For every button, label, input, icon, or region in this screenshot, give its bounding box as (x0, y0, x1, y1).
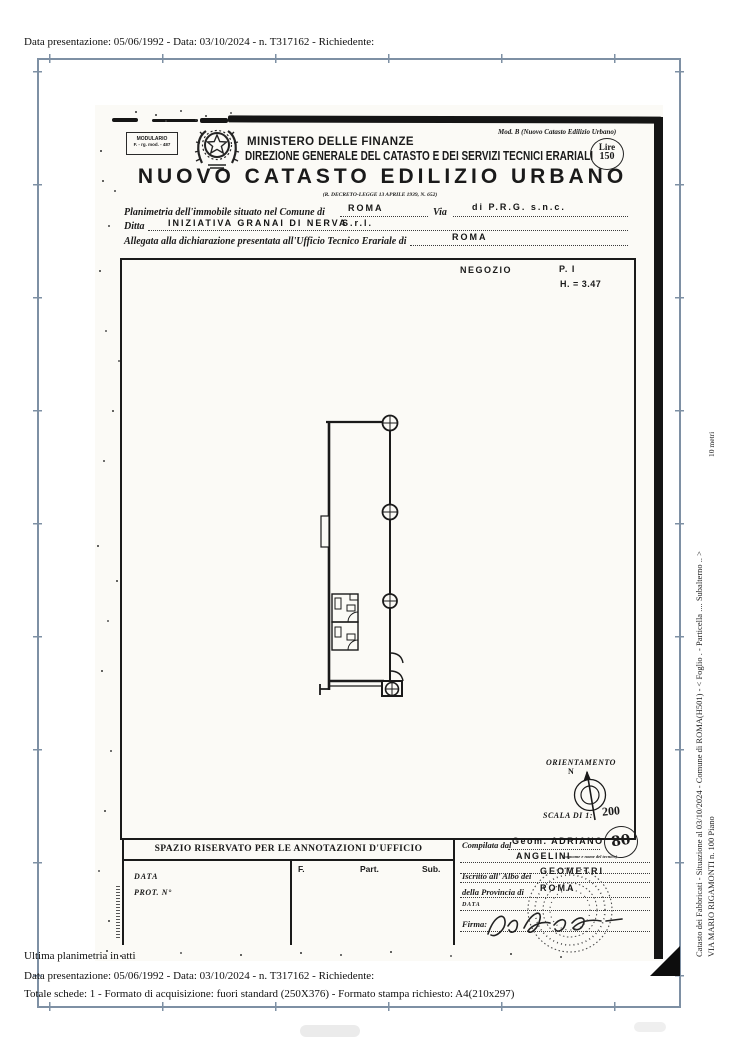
scan-edge-top-fragment (112, 118, 138, 122)
mod-b-label: Mod. B (Nuovo Catasto Edilizio Urbano) (498, 128, 616, 136)
lire-value: 150 (591, 152, 623, 162)
annotations-data-label: DATA (134, 872, 158, 881)
via-field-value: di P.R.G. s.n.c. (472, 202, 566, 212)
scale-value: 200 (601, 803, 620, 820)
bottom-margin-line2: Totale schede: 1 - Formato di acquisizio… (24, 988, 514, 1000)
ditta-field-line (148, 230, 628, 231)
orientation-label: ORIENTAMENTO (546, 758, 616, 767)
comune-field-line (340, 216, 428, 217)
bottom-margin-line1: Data presentazione: 05/06/1992 - Data: 0… (24, 970, 374, 982)
modulario-line2: F. - rg. mod. - 487 (127, 142, 177, 147)
annotations-header: SPAZIO RISERVATO PER LE ANNOTAZIONI D'UF… (124, 840, 453, 861)
ditta-field-value-suffix: S.r.l. (342, 218, 373, 228)
side-margin-line2: VIA MARIO RIGAMONTI n. 100 Piano (706, 816, 716, 957)
side-margin-line1: Catasto dei Fabbricati - Situazione al 0… (694, 551, 704, 957)
decree-reference: (R. DECRETO-LEGGE 13 APRILE 1939, N. 652… (180, 192, 580, 198)
via-field-line (453, 216, 628, 217)
technician-name-line1: Geom. ADRIANO (512, 836, 604, 846)
scan-edge-right (654, 117, 663, 959)
badge-number: 80 (610, 832, 632, 851)
scan-noise-bottom (300, 952, 302, 954)
ministry-name: MINISTERO DELLE FINANZE (247, 136, 414, 148)
compiler-date-label: DATA (462, 902, 481, 908)
register-label: Iscritto all' Albo dei (462, 871, 531, 881)
office-annotations-box: SPAZIO RISERVATO PER LE ANNOTAZIONI D'UF… (122, 838, 455, 945)
technician-line2-rule (460, 862, 650, 863)
comune-field-label: Planimetria dell'immobile situato nel Co… (124, 207, 325, 218)
print-smudge (300, 1025, 360, 1037)
ufficio-field-label: Allegata alla dichiarazione presentata a… (124, 236, 407, 247)
province-label: della Provincia di (462, 887, 524, 897)
technician-line1-rule (508, 849, 600, 850)
scan-edge-top-fragment (152, 119, 198, 122)
scan-noise-left (100, 150, 102, 152)
annotations-prot-label: PROT. N° (134, 888, 172, 897)
frame-bottom-ticks (38, 1002, 680, 1011)
scale-label: SCALA DI 1: (543, 811, 593, 820)
via-field-label: Via (433, 207, 447, 218)
technician-note: (cognome e nome del tecnico) (562, 854, 617, 859)
floor-plan-drawing (310, 408, 430, 700)
ufficio-field-value: ROMA (452, 232, 488, 242)
compiled-by-label: Compilata dal (462, 840, 511, 850)
annotations-divider (290, 859, 292, 945)
print-smudge (634, 1022, 666, 1032)
italy-emblem-icon (194, 123, 240, 171)
frame-right-ticks (675, 58, 684, 1008)
frame-top-ticks (38, 54, 680, 63)
annotations-col-foglio: F. (298, 864, 305, 874)
floor-label: P. I (559, 264, 575, 274)
direction-name: DIREZIONE GENERALE DEL CATASTO E DEI SER… (245, 149, 593, 163)
modulario-box: MODULARIO F. - rg. mod. - 487 (126, 132, 178, 155)
top-margin-text: Data presentazione: 05/06/1992 - Data: 0… (24, 36, 374, 48)
bottom-note: Ultima planimetria in atti (24, 950, 136, 962)
frame-left-ticks (33, 58, 42, 1008)
scan-noise-top (135, 111, 137, 113)
round-office-stamp (524, 864, 616, 956)
ditta-field-value: INIZIATIVA GRANAI DI NERVA (168, 218, 348, 228)
comune-field-value: ROMA (348, 203, 384, 213)
scan-edge-top (228, 115, 662, 123)
room-label: NEGOZIO (460, 265, 512, 275)
ditta-field-label: Ditta (124, 221, 145, 232)
drawing-area: NEGOZIO P. I H. = 3.47 (120, 258, 636, 840)
side-scale-note: 10 metri (707, 432, 716, 457)
margin-micro-text (116, 884, 120, 938)
scanned-cadastral-document-page: { "colors": { "ink": "#1a1a1a", "frame_l… (0, 0, 742, 1050)
ufficio-field-line (410, 245, 628, 246)
document-title: NUOVO CATASTO EDILIZIO URBANO (130, 165, 635, 189)
annotations-col-part: Part. (360, 864, 379, 874)
corner-fold-mark (650, 946, 680, 976)
height-label: H. = 3.47 (560, 279, 601, 289)
annotations-col-sub: Sub. (422, 864, 440, 874)
